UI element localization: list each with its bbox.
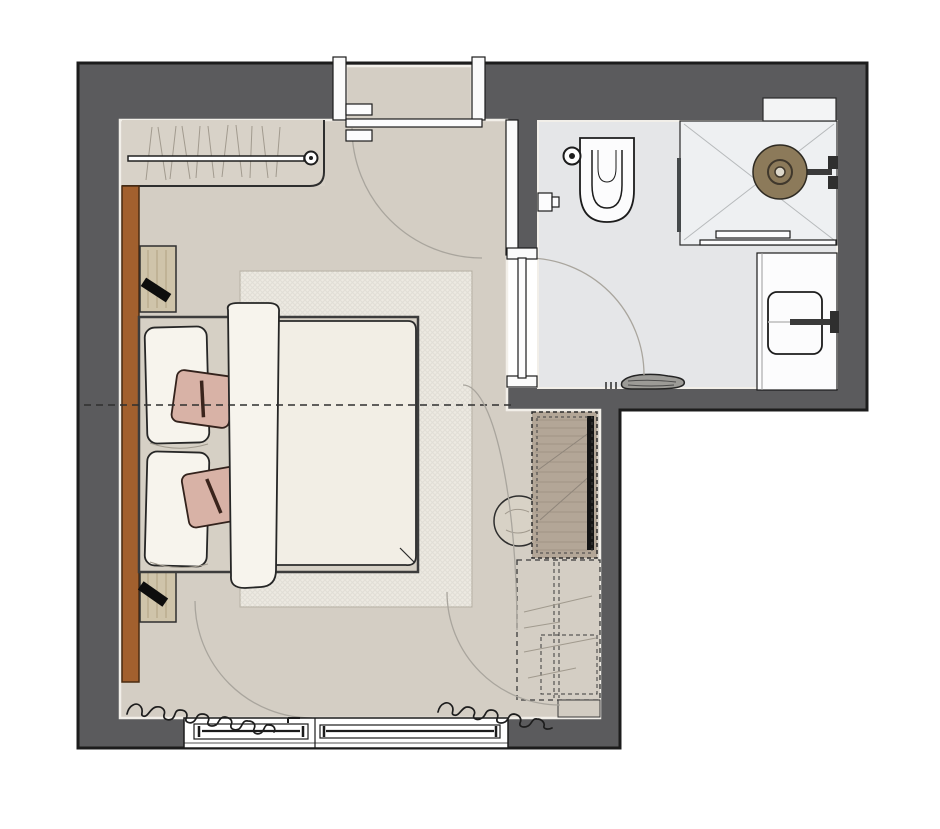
- floor-plan-drawing: [0, 0, 940, 829]
- decorative-cushion: [171, 369, 236, 429]
- floor-drain-dot: [569, 153, 575, 159]
- wall-bottom-left: [120, 716, 185, 748]
- rail-end-dot-icon: [309, 156, 313, 160]
- door-jamb: [333, 57, 346, 120]
- wardrobe-interior: [122, 120, 325, 186]
- door-hinge-plate: [346, 130, 372, 141]
- shower-head-nozzle: [775, 167, 785, 177]
- wall-bathroom-left: [517, 120, 538, 255]
- wall-right-bathroom: [837, 63, 867, 410]
- door-hinge-plate: [346, 104, 372, 115]
- luggage-unit-step: [558, 700, 600, 717]
- tv-sideboard: [532, 412, 597, 558]
- wall-hung-toilet: [580, 138, 634, 222]
- wood-accent-wall-panel: [122, 186, 139, 682]
- nightstand-left: [140, 246, 176, 312]
- wall-right-lower: [600, 410, 620, 748]
- wall-niche: [763, 98, 836, 121]
- floor-plan-canvas: [0, 0, 940, 829]
- entry-door-leaf: [346, 119, 482, 127]
- duvet: [257, 321, 416, 565]
- bathroom-door-leaf: [518, 258, 526, 378]
- hanging-rail: [128, 156, 304, 161]
- shower-threshold: [700, 240, 836, 245]
- shower-bracket: [828, 156, 838, 169]
- door-jamb: [472, 57, 485, 120]
- wall-left: [78, 120, 120, 748]
- tv-panel: [587, 416, 594, 550]
- faucet-icon: [790, 319, 836, 325]
- double-bed: [139, 303, 418, 588]
- faucet-wall-mount: [830, 311, 839, 333]
- wardrobe-with-rail: [122, 120, 325, 186]
- shower-bracket: [828, 176, 838, 189]
- bed-runner: [228, 303, 279, 588]
- wall-bathroom-bottom: [508, 388, 867, 410]
- toilet-bowl: [580, 138, 634, 222]
- duct-panel: [506, 120, 518, 255]
- dashed-luggage-unit: [517, 560, 600, 717]
- shower-glass-panel: [677, 158, 681, 232]
- door-jamb: [507, 248, 537, 259]
- window: [320, 725, 500, 738]
- vanity-counter-with-basin: [757, 253, 839, 390]
- shower-threshold: [716, 231, 790, 238]
